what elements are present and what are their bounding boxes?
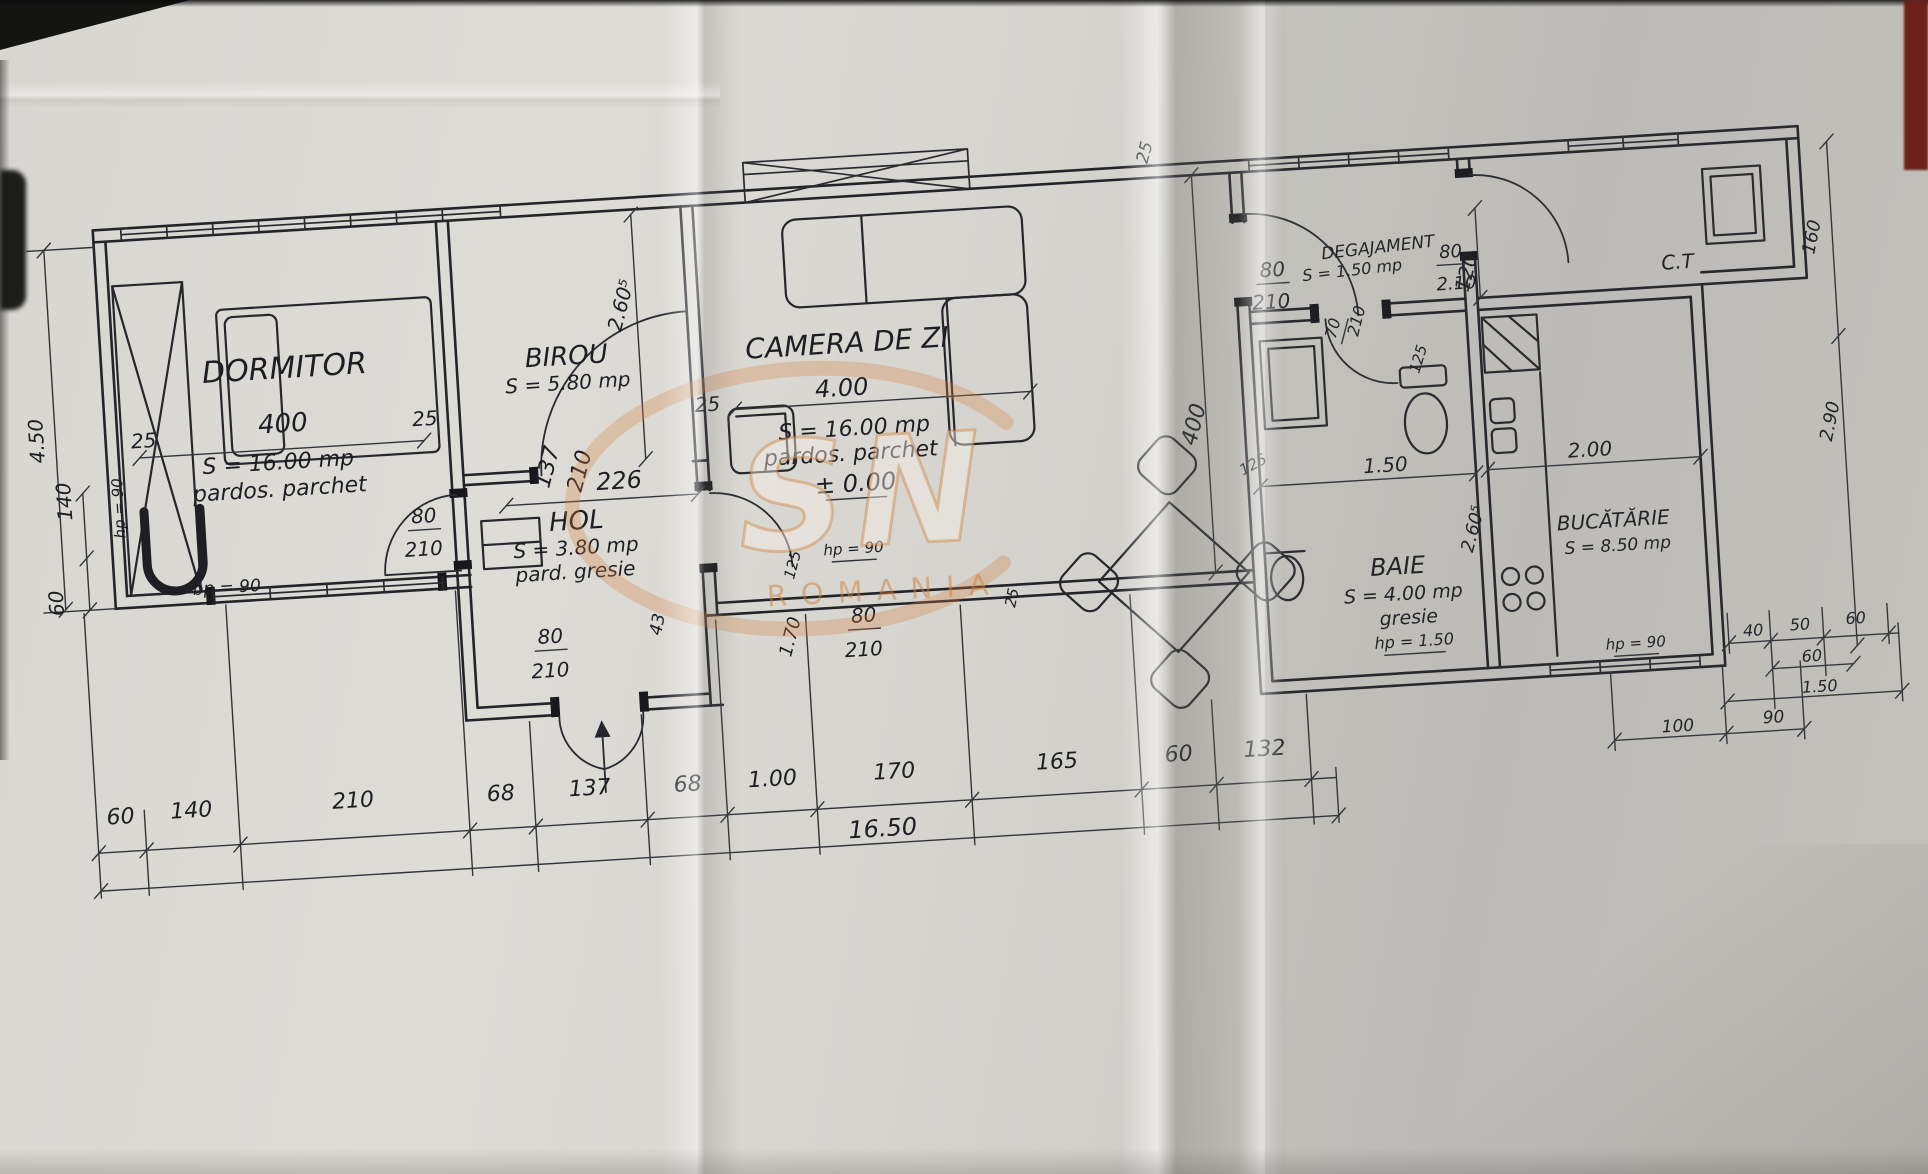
label-dim-125-baie: 125 (1406, 343, 1431, 376)
washing-machine (1260, 338, 1327, 430)
label-baie-floor: gresie (1379, 605, 1439, 631)
label-dim-90: 90 (1762, 707, 1785, 728)
label-underline (535, 649, 567, 651)
label-bottom-68b: 68 (673, 771, 702, 798)
label-dim-140-left: 140 (51, 482, 77, 522)
boiler (1702, 166, 1764, 244)
dimension-line (1887, 604, 1889, 644)
dimension-line (1336, 768, 1339, 823)
dimension-line (1306, 694, 1314, 824)
label-dim-150-baie: 1.50 (1362, 452, 1408, 479)
label-wall-dim-25-c: 25 (694, 391, 721, 417)
label-bottom-170: 170 (873, 758, 916, 786)
label-dim-60-r2: 60 (1801, 646, 1822, 666)
dimension-line (84, 614, 101, 898)
label-baie-name: BAIE (1369, 551, 1427, 582)
label-dim-25-top: 25 (1133, 139, 1158, 165)
label-bottom-60a: 60 (106, 804, 135, 831)
dining-table-and-chairs (1046, 424, 1308, 720)
label-wall-dim-25-b: 25 (411, 406, 438, 432)
dimension-line (99, 778, 1337, 854)
label-underline (409, 529, 441, 531)
label-dim-25-step: 25 (1001, 587, 1022, 609)
label-door-baie-70: 70 (1321, 316, 1344, 340)
dimension-line (716, 620, 731, 860)
label-hp-bucatarie: hp = 90 (1605, 632, 1666, 654)
label-dim-150-r: 1.50 (1801, 676, 1838, 697)
label-door-ct-80: 80 (1438, 241, 1462, 263)
dimension-line (1769, 611, 1775, 709)
label-dim-450: 4.50 (23, 418, 50, 464)
entry-arrow (594, 720, 611, 738)
label-dim-226: 226 (595, 465, 642, 496)
label-door-dormitor-210: 210 (404, 536, 444, 562)
label-underline (1614, 654, 1658, 657)
label-dim-60-left: 60 (44, 590, 70, 617)
label-bottom-137: 137 (568, 775, 611, 803)
dimension-line (641, 715, 650, 865)
label-bucatarie-area: S = 8.50 mp (1564, 533, 1672, 559)
label-dim-200-kitchen: 2.00 (1567, 436, 1613, 463)
label-door-ct-210: 2.10 (1436, 272, 1477, 295)
dimension-line (27, 247, 94, 251)
watermark-letters: SN (733, 400, 995, 587)
label-dim-60-r1: 60 (1845, 608, 1866, 628)
label-underline (1385, 652, 1445, 656)
dimension-line (1211, 700, 1219, 830)
boiler-room-door-arc (1470, 170, 1569, 269)
label-door-degajament-210: 210 (1251, 288, 1291, 314)
dimension-line (805, 615, 820, 855)
label-camera-name: CAMERA DE ZI (744, 320, 949, 365)
label-ct-name: C.T (1661, 249, 1697, 275)
photographed-floor-plan: DORMITOR400S = 16.00 mppardos. parchet25… (0, 0, 1928, 1174)
label-door-baie-210: 210 (1343, 304, 1369, 338)
label-bottom-140: 140 (170, 797, 213, 825)
label-dim-40: 40 (1742, 620, 1763, 640)
label-hp-baie: hp = 1.50 (1374, 629, 1455, 653)
label-bottom-132: 132 (1243, 736, 1286, 764)
label-dim-100: 100 (1661, 716, 1695, 738)
dimension-line (1800, 661, 1805, 739)
label-bottom-210: 210 (331, 787, 374, 815)
label-door-entry-210: 210 (531, 657, 571, 683)
dimension-line (101, 815, 1339, 891)
dimension-line (455, 591, 472, 875)
label-door-entry-80: 80 (537, 623, 564, 649)
stove (1501, 566, 1545, 611)
label-bottom-60b: 60 (1164, 741, 1193, 768)
label-bp-dormitor: bp = 90 (192, 576, 261, 600)
label-bottom-100: 1.00 (747, 765, 797, 793)
label-dim-2605-kitchen: 2.60⁵ (1457, 503, 1489, 554)
label-dim-170: 1.70 (775, 615, 805, 659)
dimension-line (1191, 175, 1215, 572)
kitchen-sink (1490, 398, 1517, 453)
label-bottom-total: 16.50 (848, 812, 918, 844)
dimension-line (1727, 613, 1729, 653)
label-dim-50: 50 (1789, 614, 1810, 634)
dimension-line (960, 605, 975, 845)
label-wall-dim-25-a: 25 (130, 428, 157, 454)
label-bottom-68a: 68 (486, 781, 515, 808)
label-birou-area: S = 5.80 mp (505, 367, 631, 399)
label-dormitor-width-dim: 400 (257, 408, 308, 441)
dimension-line (226, 605, 243, 889)
label-baie-area: S = 4.00 mp (1343, 579, 1463, 608)
dimension-line (1898, 623, 1903, 701)
dimension-line (1130, 595, 1145, 835)
label-door-camera-210: 210 (844, 636, 884, 662)
label-bottom-165: 165 (1035, 748, 1078, 776)
dimension-line (530, 722, 539, 872)
label-underline (1257, 282, 1289, 284)
floor-plan-drawing: DORMITOR400S = 16.00 mppardos. parchet25… (0, 0, 1928, 1174)
label-hp-dormitor: hp = 90 (108, 478, 130, 539)
dimension-line (83, 494, 90, 611)
label-door-degajament-80: 80 (1259, 257, 1286, 283)
toilet (1400, 365, 1451, 455)
label-dim-290: 2.90 (1816, 400, 1845, 443)
label-bucatarie-name: BUCĂTĂRIE (1556, 505, 1670, 536)
dimension-line (1827, 141, 1858, 645)
label-dim-137: 137 (530, 444, 565, 491)
label-dim-125-camera: 125 (1236, 450, 1270, 479)
label-dim-400-vert: 400 (1177, 401, 1212, 448)
label-door-dormitor-80: 80 (410, 503, 437, 529)
dimension-line (1615, 729, 1805, 741)
dimension-line (1611, 673, 1616, 751)
